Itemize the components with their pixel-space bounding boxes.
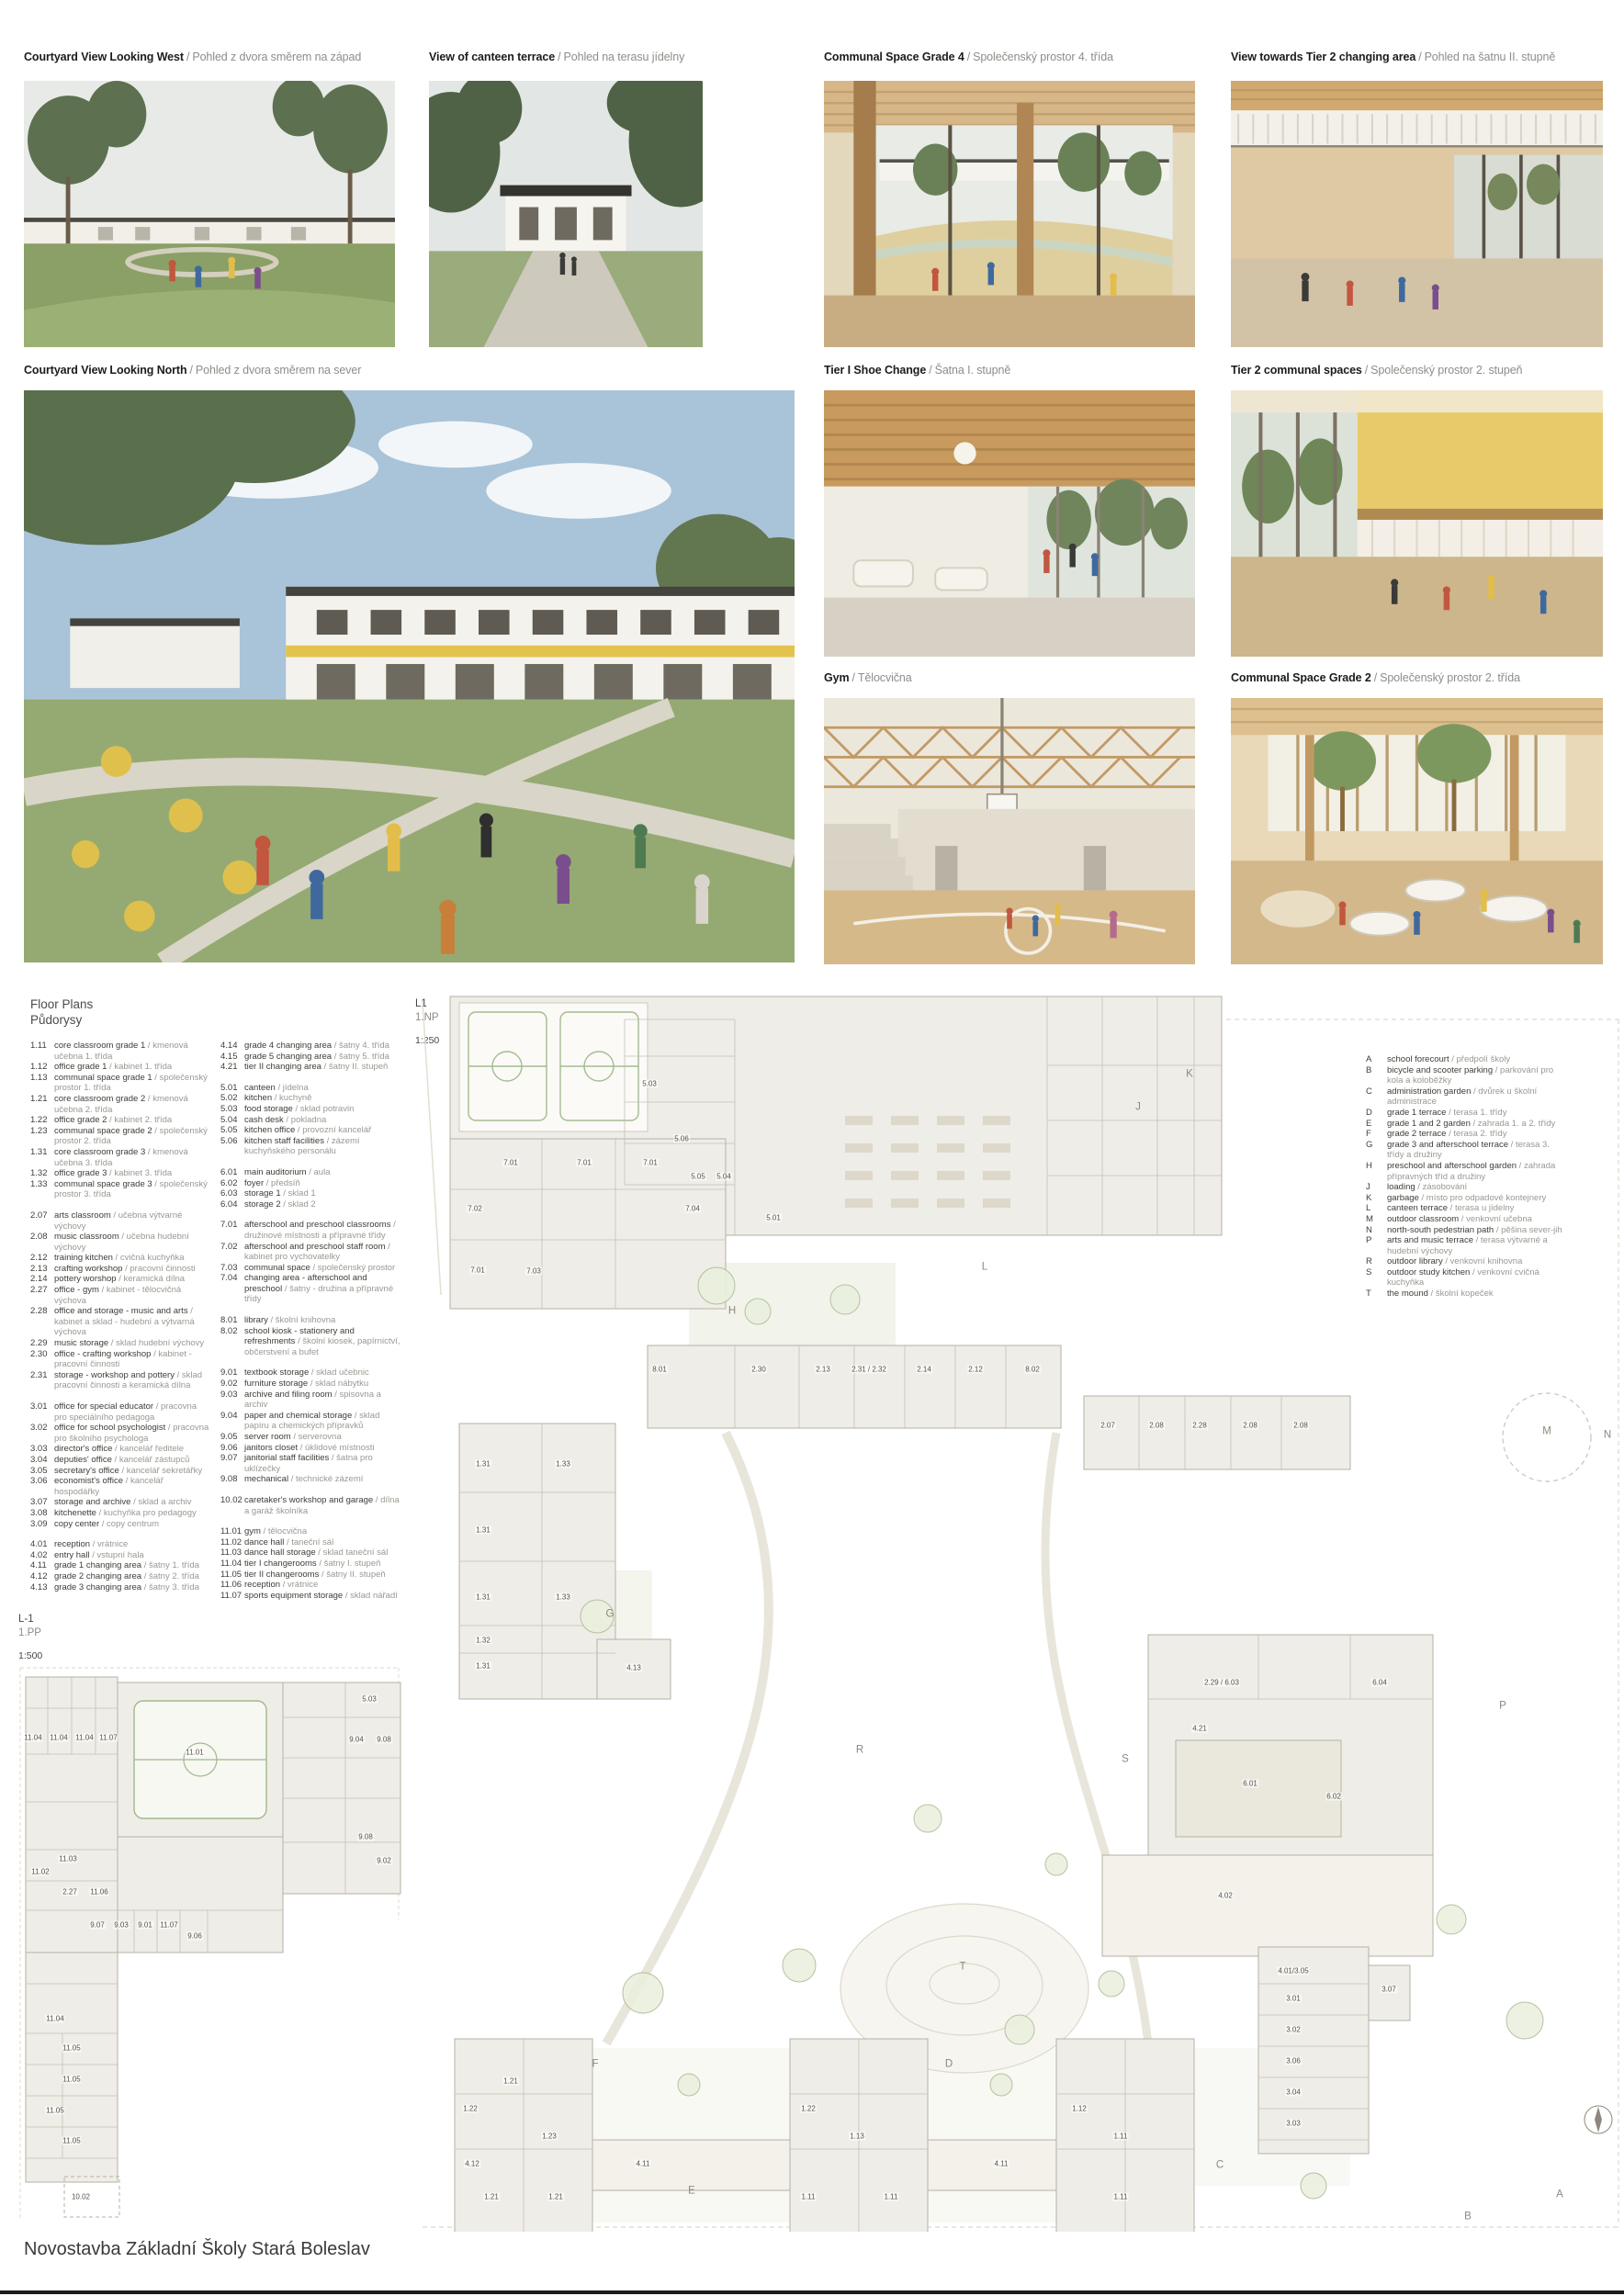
render-tier1-shoe-change-illustration bbox=[824, 390, 1195, 657]
plan-room-label: 9.08 bbox=[376, 1736, 392, 1744]
plan-room-label: 1.23 bbox=[541, 2133, 558, 2141]
plan-room-label: 9.07 bbox=[89, 1921, 106, 1930]
legend-row: 3.01office for special educator / pracov… bbox=[30, 1401, 210, 1423]
plan-room-label: 1.31 bbox=[475, 1593, 491, 1602]
plan-room-label: 3.01 bbox=[1285, 1995, 1302, 2003]
plan-room-label: 6.04 bbox=[1371, 1679, 1388, 1687]
plan-room-label: 2.08 bbox=[1292, 1422, 1309, 1430]
plan-room-label: 11.04 bbox=[45, 2015, 64, 2023]
legend-row: 2.14pottery worshop / keramická dílna bbox=[30, 1274, 210, 1285]
plan-room-label: 11.02 bbox=[30, 1868, 50, 1876]
plan-room-label: 7.04 bbox=[684, 1205, 701, 1213]
floor-plan-l1-labels: 5.035.065.055.045.017.017.017.017.027.04… bbox=[413, 992, 1624, 2232]
render-tier2-changing-view bbox=[1231, 81, 1603, 347]
plan-letter-label: N bbox=[1603, 1432, 1612, 1440]
plan-room-label: 11.04 bbox=[49, 1734, 68, 1742]
plan-letter-label: K bbox=[1185, 1071, 1194, 1079]
render-canteen-terrace-illustration bbox=[429, 81, 703, 347]
project-title: Novostavba Základní Školy Stará Boleslav bbox=[24, 2239, 370, 2260]
render-communal-grade2-illustration bbox=[1231, 698, 1603, 964]
legend-row: 11.02dance hall / taneční sál bbox=[220, 1537, 400, 1548]
legend-row: 1.33communal space grade 3 / společenský… bbox=[30, 1179, 210, 1200]
legend-row: 2.07arts classroom / učebna výtvarné výc… bbox=[30, 1210, 210, 1232]
footer-rule bbox=[0, 2290, 1624, 2294]
legend-row: 9.02furniture storage / sklad nábytku bbox=[220, 1379, 400, 1390]
plan-room-label: 7.01 bbox=[469, 1266, 486, 1275]
legend-row: 11.01gym / tělocvična bbox=[220, 1526, 400, 1537]
plan-room-label: 7.02 bbox=[467, 1205, 483, 1213]
legend-row: 1.31core classroom grade 3 / kmenová uče… bbox=[30, 1147, 210, 1168]
legend-row: 7.04changing area - afterschool and pres… bbox=[220, 1273, 400, 1305]
plan-room-label: 11.06 bbox=[89, 1888, 108, 1896]
render-communal-grade4-illustration bbox=[824, 81, 1195, 347]
floor-plan-l-1: 11.0411.0411.0411.0711.015.039.049.089.0… bbox=[15, 1644, 404, 2223]
plan-room-label: 1.31 bbox=[475, 1460, 491, 1469]
plan-room-label: 11.07 bbox=[98, 1734, 118, 1742]
legend-row: 8.02school kiosk - stationery and refres… bbox=[220, 1326, 400, 1358]
render-tier1-shoe-change bbox=[824, 390, 1195, 657]
legend-row: 2.28office and storage - music and arts … bbox=[30, 1306, 210, 1338]
plan-room-label: 9.06 bbox=[186, 1932, 203, 1941]
plan-letter-label: H bbox=[727, 1308, 737, 1316]
caption-canteen-terrace: View of canteen terrace/Pohled na terasu… bbox=[429, 51, 684, 63]
plan-room-label: 9.08 bbox=[357, 1833, 374, 1841]
plan-letter-label: J bbox=[1134, 1104, 1142, 1112]
plan-room-label: 1.12 bbox=[1071, 2105, 1088, 2113]
legend-row: 1.11core classroom grade 1 / kmenová uče… bbox=[30, 1041, 210, 1062]
legend-row: 3.02office for school psychologist / pra… bbox=[30, 1423, 210, 1444]
legend-row: 2.13crafting workshop / pracovní činnost… bbox=[30, 1264, 210, 1275]
render-communal-grade4 bbox=[824, 81, 1195, 347]
legend-row: 1.32office grade 3 / kabinet 3. třída bbox=[30, 1168, 210, 1179]
plan-room-label: 10.02 bbox=[71, 2193, 91, 2201]
plan-room-label: 1.22 bbox=[800, 2105, 817, 2113]
render-tier2-communal bbox=[1231, 390, 1603, 657]
plan-room-label: 4.12 bbox=[464, 2160, 480, 2168]
legend-row: 4.01reception / vrátnice bbox=[30, 1539, 210, 1550]
legend-row: 5.03food storage / sklad potravin bbox=[220, 1104, 400, 1115]
plan-room-label: 11.05 bbox=[62, 2076, 81, 2084]
legend-row: 3.04deputies' office / kancelář zástupců bbox=[30, 1455, 210, 1466]
legend-row: 11.06reception / vrátnice bbox=[220, 1580, 400, 1591]
legend-row: 4.11grade 1 changing area / šatny 1. tří… bbox=[30, 1560, 210, 1571]
plan-room-label: 8.01 bbox=[651, 1366, 668, 1374]
plan-room-label: 11.05 bbox=[62, 2137, 81, 2145]
plan-room-label: 6.02 bbox=[1325, 1793, 1342, 1801]
plan-room-label: 4.21 bbox=[1191, 1725, 1208, 1733]
plan-room-label: 4.11 bbox=[994, 2160, 1009, 2168]
plan-room-label: 2.29 / 6.03 bbox=[1203, 1679, 1240, 1687]
legend-row: 6.01main auditorium / aula bbox=[220, 1167, 400, 1178]
plan-letter-label: E bbox=[687, 2188, 696, 2196]
plan-room-label: 1.21 bbox=[547, 2193, 564, 2201]
plan-room-label: 9.04 bbox=[348, 1736, 365, 1744]
plan-room-label: 2.08 bbox=[1148, 1422, 1165, 1430]
plan-letter-label: G bbox=[605, 1611, 615, 1619]
caption-courtyard-west: Courtyard View Looking West/Pohled z dvo… bbox=[24, 51, 361, 63]
plan-letter-label: L bbox=[981, 1264, 988, 1272]
legend-row: 1.12office grade 1 / kabinet 1. třída bbox=[30, 1062, 210, 1073]
render-canteen-terrace bbox=[429, 81, 703, 347]
render-gym-illustration bbox=[824, 698, 1195, 964]
plan-room-label: 4.01/3.05 bbox=[1277, 1967, 1309, 1975]
plan-room-label: 1.31 bbox=[475, 1662, 491, 1671]
legend-row: 7.03communal space / společenský prostor bbox=[220, 1263, 400, 1274]
render-courtyard-west-illustration bbox=[24, 81, 395, 347]
plan-room-label: 5.01 bbox=[765, 1214, 782, 1222]
plan-room-label: 3.02 bbox=[1285, 2026, 1302, 2034]
room-legend-column-2: 4.14grade 4 changing area / šatny 4. tří… bbox=[220, 1041, 400, 1611]
plan-room-label: 1.13 bbox=[849, 2133, 865, 2141]
plan-room-label: 1.32 bbox=[475, 1637, 491, 1645]
legend-row: 3.05secretary's office / kancelář sekret… bbox=[30, 1466, 210, 1477]
plan-letter-label: F bbox=[591, 2061, 599, 2069]
floor-plans-heading: Floor Plans Půdorysy bbox=[30, 996, 93, 1028]
plan-room-label: 9.02 bbox=[376, 1857, 392, 1865]
legend-row: 11.03dance hall storage / sklad taneční … bbox=[220, 1548, 400, 1559]
legend-row: 6.03storage 1 / sklad 1 bbox=[220, 1188, 400, 1199]
plan-room-label: 2.14 bbox=[916, 1366, 932, 1374]
floor-plans-heading-cs: Půdorysy bbox=[30, 1012, 93, 1028]
plan-room-label: 2.27 bbox=[62, 1888, 78, 1896]
plan-room-label: 4.11 bbox=[636, 2160, 651, 2168]
plan-lm1-code: L-1 bbox=[18, 1613, 42, 1626]
floor-plan-l-1-labels: 11.0411.0411.0411.0711.015.039.049.089.0… bbox=[15, 1644, 404, 2223]
plan-letter-label: C bbox=[1215, 2162, 1224, 2170]
render-gym bbox=[824, 698, 1195, 964]
legend-row: 4.15grade 5 changing area / šatny 5. tří… bbox=[220, 1052, 400, 1063]
plan-room-label: 2.07 bbox=[1100, 1422, 1116, 1430]
plan-room-label: 1.11 bbox=[1113, 2193, 1129, 2201]
plan-letter-label: R bbox=[855, 1747, 864, 1755]
legend-row: 2.08music classroom / učebna hudební výc… bbox=[30, 1232, 210, 1253]
plan-room-label: 2.31 / 2.32 bbox=[851, 1366, 887, 1374]
plan-letter-label: T bbox=[958, 1964, 966, 1972]
render-tier2-changing-illustration bbox=[1231, 81, 1603, 347]
plan-letter-label: M bbox=[1541, 1428, 1552, 1436]
caption-tier2-changing: View towards Tier 2 changing area/Pohled… bbox=[1231, 51, 1555, 63]
plan-room-label: 5.06 bbox=[673, 1135, 690, 1143]
legend-row: 2.30office - crafting workshop / kabinet… bbox=[30, 1349, 210, 1370]
legend-row: 11.05tier II changerooms / šatny II. stu… bbox=[220, 1570, 400, 1581]
plan-room-label: 5.04 bbox=[716, 1173, 732, 1181]
legend-row: 1.21core classroom grade 2 / kmenová uče… bbox=[30, 1094, 210, 1115]
plan-room-label: 3.06 bbox=[1285, 2057, 1302, 2065]
render-courtyard-north bbox=[24, 390, 795, 962]
legend-row: 9.06janitors closet / úklidové místnosti bbox=[220, 1443, 400, 1454]
legend-row: 5.06kitchen staff facilities / zázemí ku… bbox=[220, 1136, 400, 1157]
legend-row: 6.02foyer / předsíň bbox=[220, 1178, 400, 1189]
legend-row: 4.02entry hall / vstupní hala bbox=[30, 1550, 210, 1561]
legend-row: 3.09copy center / copy centrum bbox=[30, 1519, 210, 1530]
plan-room-label: 11.03 bbox=[58, 1855, 77, 1863]
plan-room-label: 1.11 bbox=[801, 2193, 817, 2201]
plan-room-label: 6.01 bbox=[1242, 1780, 1258, 1788]
plan-room-label: 7.01 bbox=[502, 1159, 519, 1167]
legend-row: 3.08kitchenette / kuchyňka pro pedagogy bbox=[30, 1508, 210, 1519]
render-courtyard-north-illustration bbox=[24, 390, 795, 962]
caption-courtyard-north: Courtyard View Looking North/Pohled z dv… bbox=[24, 364, 361, 377]
legend-row: 1.22office grade 2 / kabinet 2. třída bbox=[30, 1115, 210, 1126]
plan-letter-label: B bbox=[1463, 2213, 1472, 2222]
legend-row: 5.01canteen / jídelna bbox=[220, 1083, 400, 1094]
legend-row: 6.04storage 2 / sklad 2 bbox=[220, 1199, 400, 1210]
legend-row: 9.04paper and chemical storage / sklad p… bbox=[220, 1411, 400, 1432]
floor-plans-heading-en: Floor Plans bbox=[30, 996, 93, 1012]
plan-room-label: 1.21 bbox=[483, 2193, 500, 2201]
plan-room-label: 5.03 bbox=[641, 1080, 658, 1088]
plan-letter-label: P bbox=[1498, 1703, 1507, 1711]
plan-letter-label: A bbox=[1555, 2191, 1564, 2200]
legend-row: 4.13grade 3 changing area / šatny 3. tří… bbox=[30, 1582, 210, 1593]
plan-room-label: 3.04 bbox=[1285, 2088, 1302, 2097]
plan-room-label: 3.07 bbox=[1381, 1986, 1397, 1994]
floor-plan-l1: 5.035.065.055.045.017.017.017.017.027.04… bbox=[413, 992, 1624, 2232]
plan-room-label: 11.04 bbox=[23, 1734, 42, 1742]
room-legend-column-1: 1.11core classroom grade 1 / kmenová uče… bbox=[30, 1041, 210, 1603]
legend-row: 11.07sports equipment storage / sklad ná… bbox=[220, 1591, 400, 1602]
plan-room-label: 11.04 bbox=[74, 1734, 94, 1742]
legend-row: 7.02afterschool and preschool staff room… bbox=[220, 1242, 400, 1263]
plan-lm1-level: 1.PP bbox=[18, 1626, 42, 1640]
plan-room-label: 5.05 bbox=[690, 1173, 706, 1181]
plan-room-label: 5.03 bbox=[361, 1695, 378, 1704]
plan-room-label: 8.02 bbox=[1024, 1366, 1041, 1374]
legend-row: 9.08mechanical / technické zázemí bbox=[220, 1474, 400, 1485]
plan-room-label: 1.11 bbox=[1113, 2133, 1129, 2141]
plan-room-label: 4.13 bbox=[626, 1664, 642, 1672]
legend-row: 1.13communal space grade 1 / společenský… bbox=[30, 1073, 210, 1094]
plan-letter-label: S bbox=[1121, 1756, 1130, 1764]
render-courtyard-west bbox=[24, 81, 395, 347]
caption-communal-grade4: Communal Space Grade 4/Společenský prost… bbox=[824, 51, 1113, 63]
plan-room-label: 2.08 bbox=[1242, 1422, 1258, 1430]
legend-row: 7.01afterschool and preschool classrooms… bbox=[220, 1220, 400, 1241]
plan-room-label: 2.30 bbox=[750, 1366, 767, 1374]
legend-row: 10.02caretaker's workshop and garage / d… bbox=[220, 1495, 400, 1516]
caption-tier2-communal: Tier 2 communal spaces/Společenský prost… bbox=[1231, 364, 1522, 377]
plan-room-label: 11.01 bbox=[185, 1749, 204, 1757]
plan-room-label: 9.03 bbox=[113, 1921, 130, 1930]
plan-room-label: 2.28 bbox=[1191, 1422, 1208, 1430]
legend-row: 9.03archive and filing room / spisovna a… bbox=[220, 1390, 400, 1411]
render-tier2-communal-illustration bbox=[1231, 390, 1603, 657]
plan-room-label: 2.13 bbox=[815, 1366, 831, 1374]
plan-room-label: 1.33 bbox=[555, 1593, 571, 1602]
caption-gym: Gym/Tělocvična bbox=[824, 671, 912, 684]
plan-room-label: 7.03 bbox=[525, 1267, 542, 1276]
legend-row: 9.05server room / serverovna bbox=[220, 1432, 400, 1443]
legend-row: 2.31storage - workshop and pottery / skl… bbox=[30, 1370, 210, 1391]
plan-room-label: 1.11 bbox=[884, 2193, 899, 2201]
plan-room-label: 1.31 bbox=[475, 1526, 491, 1535]
caption-communal-grade2: Communal Space Grade 2/Společenský prost… bbox=[1231, 671, 1520, 684]
plan-room-label: 7.01 bbox=[576, 1159, 592, 1167]
legend-row: 2.12training kitchen / cvičná kuchyňka bbox=[30, 1253, 210, 1264]
plan-room-label: 1.22 bbox=[462, 2105, 479, 2113]
legend-row: 3.03director's office / kancelář ředitel… bbox=[30, 1444, 210, 1455]
legend-row: 2.29music storage / sklad hudební výchov… bbox=[30, 1338, 210, 1349]
legend-row: 4.12grade 2 changing area / šatny 2. tří… bbox=[30, 1571, 210, 1582]
plan-room-label: 7.01 bbox=[642, 1159, 659, 1167]
legend-row: 9.01textbook storage / sklad učebnic bbox=[220, 1367, 400, 1379]
plan-room-label: 1.33 bbox=[555, 1460, 571, 1469]
presentation-board: Courtyard View Looking West/Pohled z dvo… bbox=[0, 0, 1624, 2296]
legend-row: 8.01library / školní knihovna bbox=[220, 1315, 400, 1326]
plan-room-label: 11.07 bbox=[159, 1921, 178, 1930]
legend-row: 11.04tier I changerooms / šatny I. stupe… bbox=[220, 1559, 400, 1570]
plan-room-label: 11.05 bbox=[62, 2044, 81, 2053]
plan-room-label: 2.12 bbox=[967, 1366, 984, 1374]
plan-room-label: 4.02 bbox=[1217, 1892, 1234, 1900]
legend-row: 5.05kitchen office / provozní kancelář bbox=[220, 1125, 400, 1136]
legend-row: 3.06economist's office / kancelář hospod… bbox=[30, 1476, 210, 1497]
plan-letter-label: D bbox=[944, 2061, 953, 2069]
plan-room-label: 11.05 bbox=[45, 2107, 64, 2115]
plan-room-label: 9.01 bbox=[137, 1921, 153, 1930]
render-communal-grade2 bbox=[1231, 698, 1603, 964]
legend-row: 5.04cash desk / pokladna bbox=[220, 1115, 400, 1126]
legend-row: 3.07storage and archive / sklad a archiv bbox=[30, 1497, 210, 1508]
legend-row: 2.27office - gym / kabinet - tělocvičná … bbox=[30, 1285, 210, 1306]
legend-row: 9.07janitorial staff facilities / šatna … bbox=[220, 1453, 400, 1474]
plan-room-label: 1.21 bbox=[502, 2077, 519, 2086]
legend-row: 1.23communal space grade 2 / společenský… bbox=[30, 1126, 210, 1147]
legend-row: 5.02kitchen / kuchyně bbox=[220, 1093, 400, 1104]
legend-row: 4.14grade 4 changing area / šatny 4. tří… bbox=[220, 1041, 400, 1052]
plan-room-label: 3.03 bbox=[1285, 2120, 1302, 2128]
caption-tier1-shoe-change: Tier I Shoe Change/Šatna I. stupně bbox=[824, 364, 1010, 377]
legend-row: 4.21tier II changing area / šatny II. st… bbox=[220, 1062, 400, 1073]
